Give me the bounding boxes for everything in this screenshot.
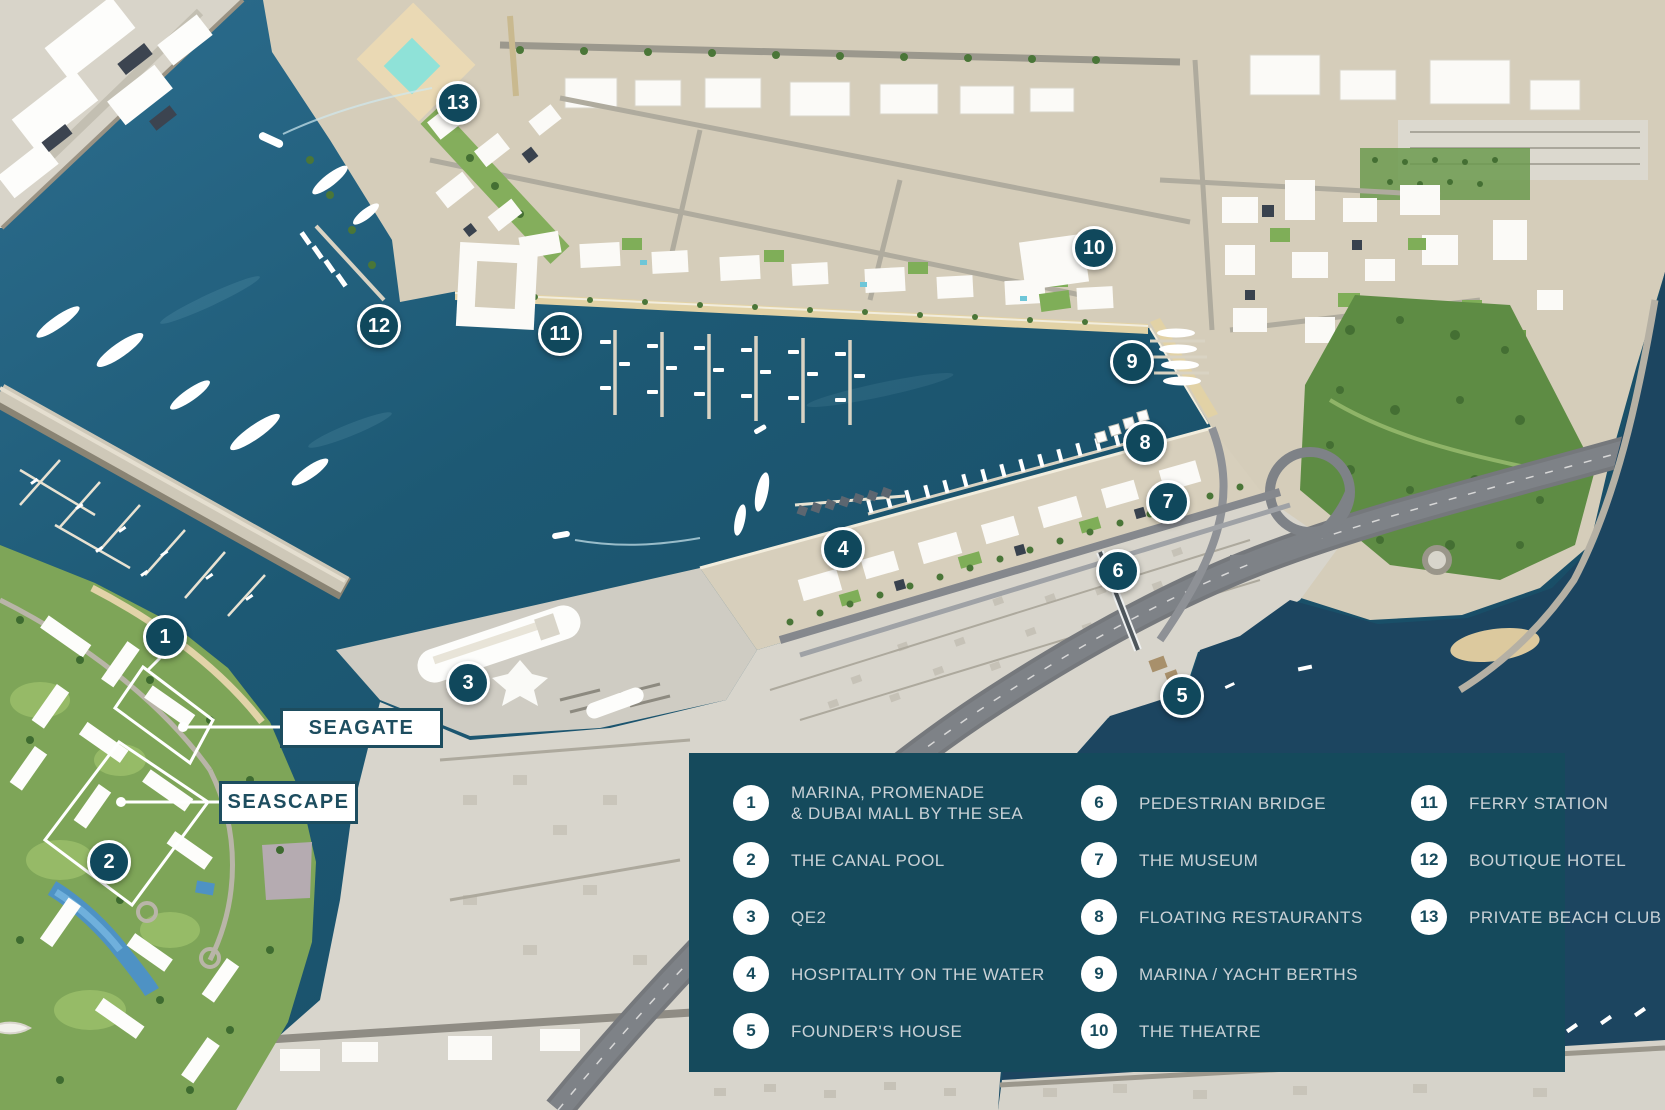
legend-label-9: MARINA / YACHT BERTHS	[1139, 964, 1358, 985]
marker-number: 3	[462, 672, 473, 695]
legend-label-2: THE CANAL POOL	[791, 850, 945, 871]
legend-badge-10: 10	[1081, 1013, 1117, 1049]
marker-number: 12	[368, 315, 390, 338]
legend-badge-1: 1	[733, 785, 769, 821]
legend-item-2: 2 THE CANAL POOL	[733, 842, 1045, 878]
marker-number: 11	[549, 323, 570, 346]
legend-label-8: FLOATING RESTAURANTS	[1139, 907, 1363, 928]
marker-number: 4	[837, 538, 848, 561]
legend-item-13: 13 PRIVATE BEACH CLUB	[1411, 899, 1662, 935]
marker-number: 2	[103, 851, 114, 874]
legend-badge-6: 6	[1081, 785, 1117, 821]
legend-item-4: 4 HOSPITALITY ON THE WATER	[733, 956, 1045, 992]
legend-label-13: PRIVATE BEACH CLUB	[1469, 907, 1662, 928]
map-marker-2[interactable]: 2	[87, 840, 131, 884]
map-marker-10[interactable]: 10	[1072, 226, 1116, 270]
legend-label-3: QE2	[791, 907, 827, 928]
legend-panel: 1 MARINA, PROMENADE & DUBAI MALL BY THE …	[689, 753, 1565, 1072]
map-marker-8[interactable]: 8	[1123, 421, 1167, 465]
legend-badge-7: 7	[1081, 842, 1117, 878]
marker-number: 8	[1139, 432, 1150, 455]
marker-number: 6	[1112, 560, 1123, 583]
legend-label-1: MARINA, PROMENADE & DUBAI MALL BY THE SE…	[791, 782, 1023, 824]
legend-column-1: 1 MARINA, PROMENADE & DUBAI MALL BY THE …	[733, 785, 1045, 1049]
legend-item-1: 1 MARINA, PROMENADE & DUBAI MALL BY THE …	[733, 785, 1045, 821]
legend-label-4: HOSPITALITY ON THE WATER	[791, 964, 1045, 985]
legend-badge-3: 3	[733, 899, 769, 935]
legend-label-10: THE THEATRE	[1139, 1021, 1261, 1042]
legend-column-3: 11 FERRY STATION 12 BOUTIQUE HOTEL 13 PR…	[1411, 785, 1662, 935]
legend-item-11: 11 FERRY STATION	[1411, 785, 1662, 821]
seagate-label: SEAGATE	[309, 717, 415, 740]
legend-badge-12: 12	[1411, 842, 1447, 878]
legend-badge-8: 8	[1081, 899, 1117, 935]
legend-badge-5: 5	[733, 1013, 769, 1049]
marker-number: 7	[1162, 491, 1173, 514]
legend-label-11: FERRY STATION	[1469, 793, 1608, 814]
legend-item-7: 7 THE MUSEUM	[1081, 842, 1363, 878]
legend-item-3: 3 QE2	[733, 899, 1045, 935]
map-marker-7[interactable]: 7	[1146, 480, 1190, 524]
marker-number: 9	[1126, 351, 1137, 374]
legend-badge-2: 2	[733, 842, 769, 878]
marker-number: 10	[1083, 237, 1105, 260]
map-marker-9[interactable]: 9	[1110, 340, 1154, 384]
legend-label-6: PEDESTRIAN BRIDGE	[1139, 793, 1326, 814]
legend-item-12: 12 BOUTIQUE HOTEL	[1411, 842, 1662, 878]
legend-badge-4: 4	[733, 956, 769, 992]
legend-badge-11: 11	[1411, 785, 1447, 821]
masterplan-screenshot: 1 2 3 4 5 6 7 8 9 10 11 12 13 SEAGATE SE…	[0, 0, 1665, 1110]
legend-item-9: 9 MARINA / YACHT BERTHS	[1081, 956, 1363, 992]
legend-badge-9: 9	[1081, 956, 1117, 992]
legend-badge-13: 13	[1411, 899, 1447, 935]
map-marker-3[interactable]: 3	[446, 661, 490, 705]
seascape-tag[interactable]: SEASCAPE	[219, 781, 358, 824]
legend-column-2: 6 PEDESTRIAN BRIDGE 7 THE MUSEUM 8 FLOAT…	[1081, 785, 1363, 1049]
legend-item-10: 10 THE THEATRE	[1081, 1013, 1363, 1049]
map-marker-13[interactable]: 13	[436, 81, 480, 125]
legend-item-5: 5 FOUNDER'S HOUSE	[733, 1013, 1045, 1049]
marker-number: 5	[1176, 685, 1187, 708]
legend-item-6: 6 PEDESTRIAN BRIDGE	[1081, 785, 1363, 821]
legend-label-5: FOUNDER'S HOUSE	[791, 1021, 962, 1042]
legend-label-12: BOUTIQUE HOTEL	[1469, 850, 1626, 871]
legend-item-8: 8 FLOATING RESTAURANTS	[1081, 899, 1363, 935]
seagate-tag[interactable]: SEAGATE	[280, 708, 443, 748]
marker-number: 1	[159, 626, 170, 649]
map-marker-5[interactable]: 5	[1160, 674, 1204, 718]
legend-label-7: THE MUSEUM	[1139, 850, 1258, 871]
seascape-label: SEASCAPE	[227, 791, 349, 814]
map-marker-4[interactable]: 4	[821, 527, 865, 571]
map-marker-6[interactable]: 6	[1096, 549, 1140, 593]
map-marker-1[interactable]: 1	[143, 615, 187, 659]
map-marker-11[interactable]: 11	[538, 312, 582, 356]
marker-number: 13	[447, 92, 469, 115]
map-marker-12[interactable]: 12	[357, 304, 401, 348]
